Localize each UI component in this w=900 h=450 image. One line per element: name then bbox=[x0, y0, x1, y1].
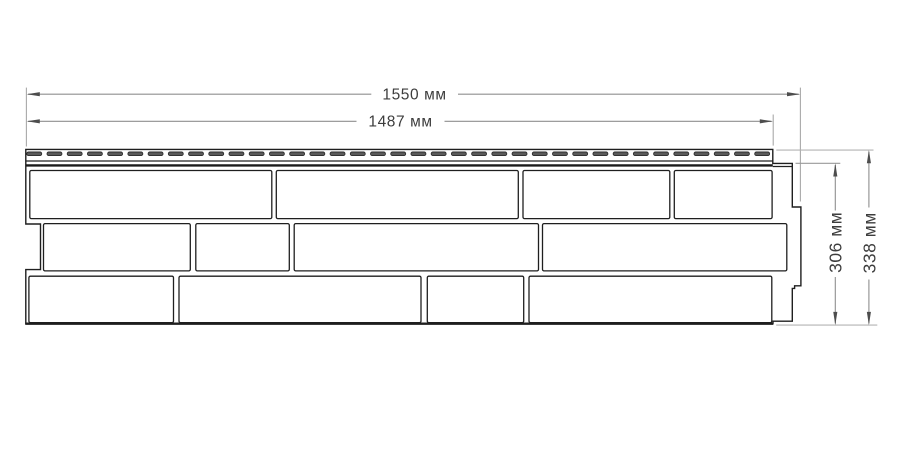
svg-text:338 мм: 338 мм bbox=[860, 212, 880, 273]
svg-text:1550 мм: 1550 мм bbox=[382, 86, 446, 103]
svg-text:1487 мм: 1487 мм bbox=[368, 114, 432, 131]
svg-text:306 мм: 306 мм bbox=[826, 212, 846, 273]
